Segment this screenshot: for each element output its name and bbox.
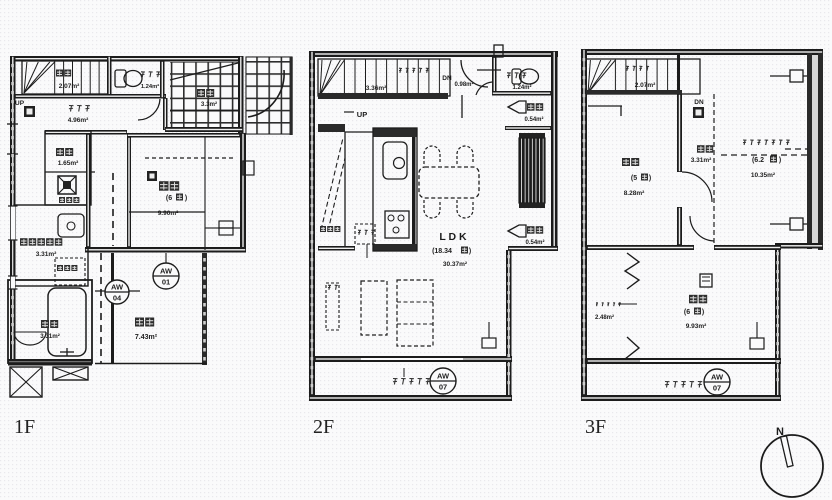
svg-text:3F: 3F <box>585 416 606 438</box>
svg-text:3.31m²: 3.31m² <box>40 333 60 340</box>
svg-text:0.54m²: 0.54m² <box>525 239 544 246</box>
svg-text:(6: (6 <box>684 309 690 316</box>
svg-text:AW: AW <box>437 372 450 381</box>
svg-text:2F: 2F <box>313 416 334 438</box>
svg-text:(6.2: (6.2 <box>752 157 764 164</box>
svg-text:1.65m²: 1.65m² <box>58 160 79 167</box>
svg-text:7.43m²: 7.43m² <box>135 334 158 341</box>
svg-text:30.37m²: 30.37m² <box>443 261 468 268</box>
svg-text:01: 01 <box>162 278 170 287</box>
svg-text:): ) <box>469 248 471 255</box>
svg-text:DN: DN <box>694 99 704 106</box>
svg-text:AW: AW <box>160 267 173 276</box>
svg-text:(18.34: (18.34 <box>432 248 452 255</box>
svg-text:2.07m²: 2.07m² <box>635 82 656 89</box>
svg-text:AW: AW <box>711 373 724 382</box>
svg-text:3.3m²: 3.3m² <box>201 101 217 108</box>
svg-text:10.35m²: 10.35m² <box>751 172 776 179</box>
svg-text:1F: 1F <box>14 416 35 438</box>
svg-text:3.36m²: 3.36m² <box>366 85 387 92</box>
svg-text:1.24m²: 1.24m² <box>141 83 159 90</box>
svg-text:07: 07 <box>439 383 447 392</box>
svg-text:3.31m²: 3.31m² <box>36 251 57 258</box>
svg-text:9.93m²: 9.93m² <box>686 323 707 330</box>
svg-text:04: 04 <box>113 294 122 303</box>
svg-text:0.98m²: 0.98m² <box>454 81 473 88</box>
svg-text:AW: AW <box>111 283 124 292</box>
svg-text:2.48m²: 2.48m² <box>595 314 614 321</box>
svg-text:): ) <box>185 195 187 202</box>
svg-text:0.54m²: 0.54m² <box>524 116 543 123</box>
svg-text:L D K: L D K <box>439 231 467 243</box>
svg-text:DN: DN <box>442 75 452 82</box>
svg-text:2.07m²: 2.07m² <box>59 83 80 90</box>
svg-text:): ) <box>702 309 704 316</box>
svg-text:(5: (5 <box>631 175 637 182</box>
svg-text:9.90m²: 9.90m² <box>158 210 179 217</box>
svg-text:(6: (6 <box>166 195 172 202</box>
svg-text:3.31m²: 3.31m² <box>691 157 712 164</box>
svg-text:N: N <box>776 426 784 438</box>
svg-text:UP: UP <box>357 110 367 119</box>
svg-text:4.96m²: 4.96m² <box>68 117 89 124</box>
svg-text:1.24m²: 1.24m² <box>512 84 531 91</box>
svg-text:): ) <box>779 157 781 164</box>
svg-text:8.28m²: 8.28m² <box>624 190 645 197</box>
svg-text:UP: UP <box>15 100 25 107</box>
svg-text:07: 07 <box>713 384 721 393</box>
svg-text:): ) <box>649 175 651 182</box>
